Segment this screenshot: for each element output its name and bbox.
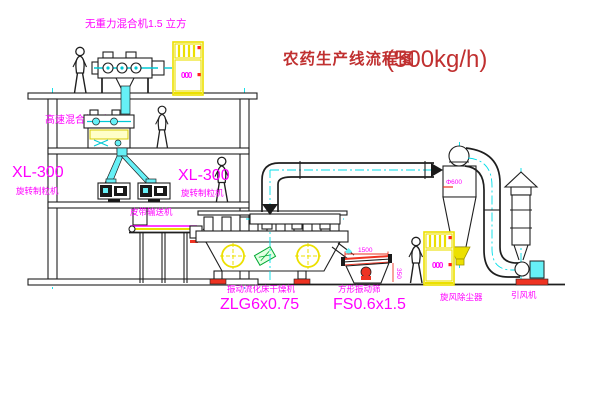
- granulator-left-name: 旋转制粒机: [16, 186, 59, 196]
- granulator-right-model: XL-300: [178, 167, 230, 184]
- gravity-mixer: [92, 52, 172, 114]
- belt-conveyor-label: 皮带输送机: [130, 207, 173, 217]
- mixer-discharge-pipe: [121, 86, 130, 114]
- person-figure-2: [156, 106, 168, 148]
- drawing-page: 高速混合机3立方 000: [0, 0, 600, 403]
- cyclone-label: 旋风除尘器: [440, 292, 483, 302]
- control-cabinet-2: 000: [424, 232, 454, 285]
- fan-label: 引风机: [511, 290, 537, 300]
- granulator-right-name: 旋转制粒机: [181, 188, 224, 198]
- granulator-left-model: XL-300: [12, 164, 64, 181]
- screen-model-label: FS0.6x1.5: [333, 296, 406, 313]
- induced-draft-fan: [515, 261, 548, 285]
- cabinet-2-display: 000: [432, 261, 444, 270]
- granulator-left: [98, 179, 130, 202]
- control-cabinet-1: 000: [173, 42, 203, 95]
- diagram-canvas: 高速混合机3立方 000: [0, 0, 600, 403]
- screen-height-dim: 350: [395, 268, 402, 279]
- cyclone-diameter-dim: Φ600: [446, 179, 462, 186]
- person-figure-1: [73, 47, 87, 93]
- page-title-capacity: (500kg/h): [386, 46, 487, 73]
- cabinet-1-display: 000: [181, 71, 193, 80]
- dryer-model-label: ZLG6x0.75: [220, 296, 299, 313]
- high-speed-mixer: [84, 110, 134, 152]
- gravity-mixer-label: 无重力混合机1.5 立方: [85, 17, 187, 30]
- dryer-name-label: 振动流化床干燥机: [227, 284, 296, 294]
- person-figure-4: [409, 237, 423, 283]
- screen-length-dim: 1500: [358, 247, 373, 254]
- screen-name-label: 方形振动筛: [338, 284, 381, 294]
- granulator-right: [138, 179, 170, 202]
